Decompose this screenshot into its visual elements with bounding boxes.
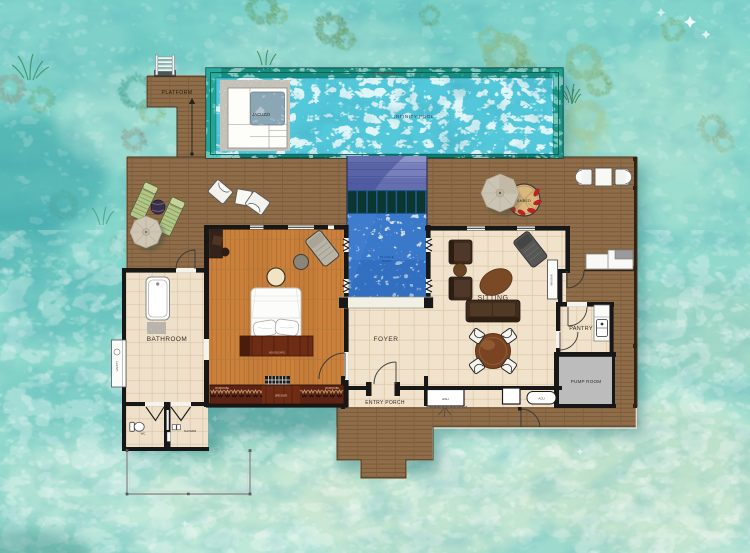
svg-text:ESH: ESH	[442, 397, 448, 401]
svg-text:SHOWER: SHOWER	[184, 429, 197, 433]
svg-text:DRESSER: DRESSER	[275, 394, 288, 398]
svg-text:HEADBOARD: HEADBOARD	[269, 351, 286, 355]
svg-text:SITTING: SITTING	[477, 295, 508, 302]
svg-text:ENTRY PORCH: ENTRY PORCH	[365, 400, 405, 406]
svg-text:FOYER: FOYER	[374, 336, 399, 343]
svg-text:POOL: POOL	[382, 259, 392, 263]
svg-text:PUMP ROOM: PUMP ROOM	[571, 379, 602, 384]
svg-text:WC: WC	[141, 432, 146, 436]
svg-text:PLATFORM: PLATFORM	[161, 90, 192, 96]
svg-text:WARDROBE: WARDROBE	[215, 387, 229, 390]
svg-text:INFINITY POOL: INFINITY POOL	[394, 114, 434, 119]
svg-text:AMBED: AMBED	[517, 199, 531, 203]
svg-text:PANTRY: PANTRY	[569, 326, 593, 332]
svg-text:VANITY: VANITY	[115, 361, 119, 372]
svg-text:WARDROBE: WARDROBE	[325, 387, 339, 390]
svg-text:ACU: ACU	[538, 397, 544, 401]
svg-text:MINI BAR: MINI BAR	[550, 274, 554, 286]
svg-text:AT WATER LEVEL: AT WATER LEVEL	[372, 72, 397, 76]
svg-text:BATHROOM: BATHROOM	[147, 336, 187, 343]
svg-text:JACUZZI: JACUZZI	[252, 112, 270, 117]
